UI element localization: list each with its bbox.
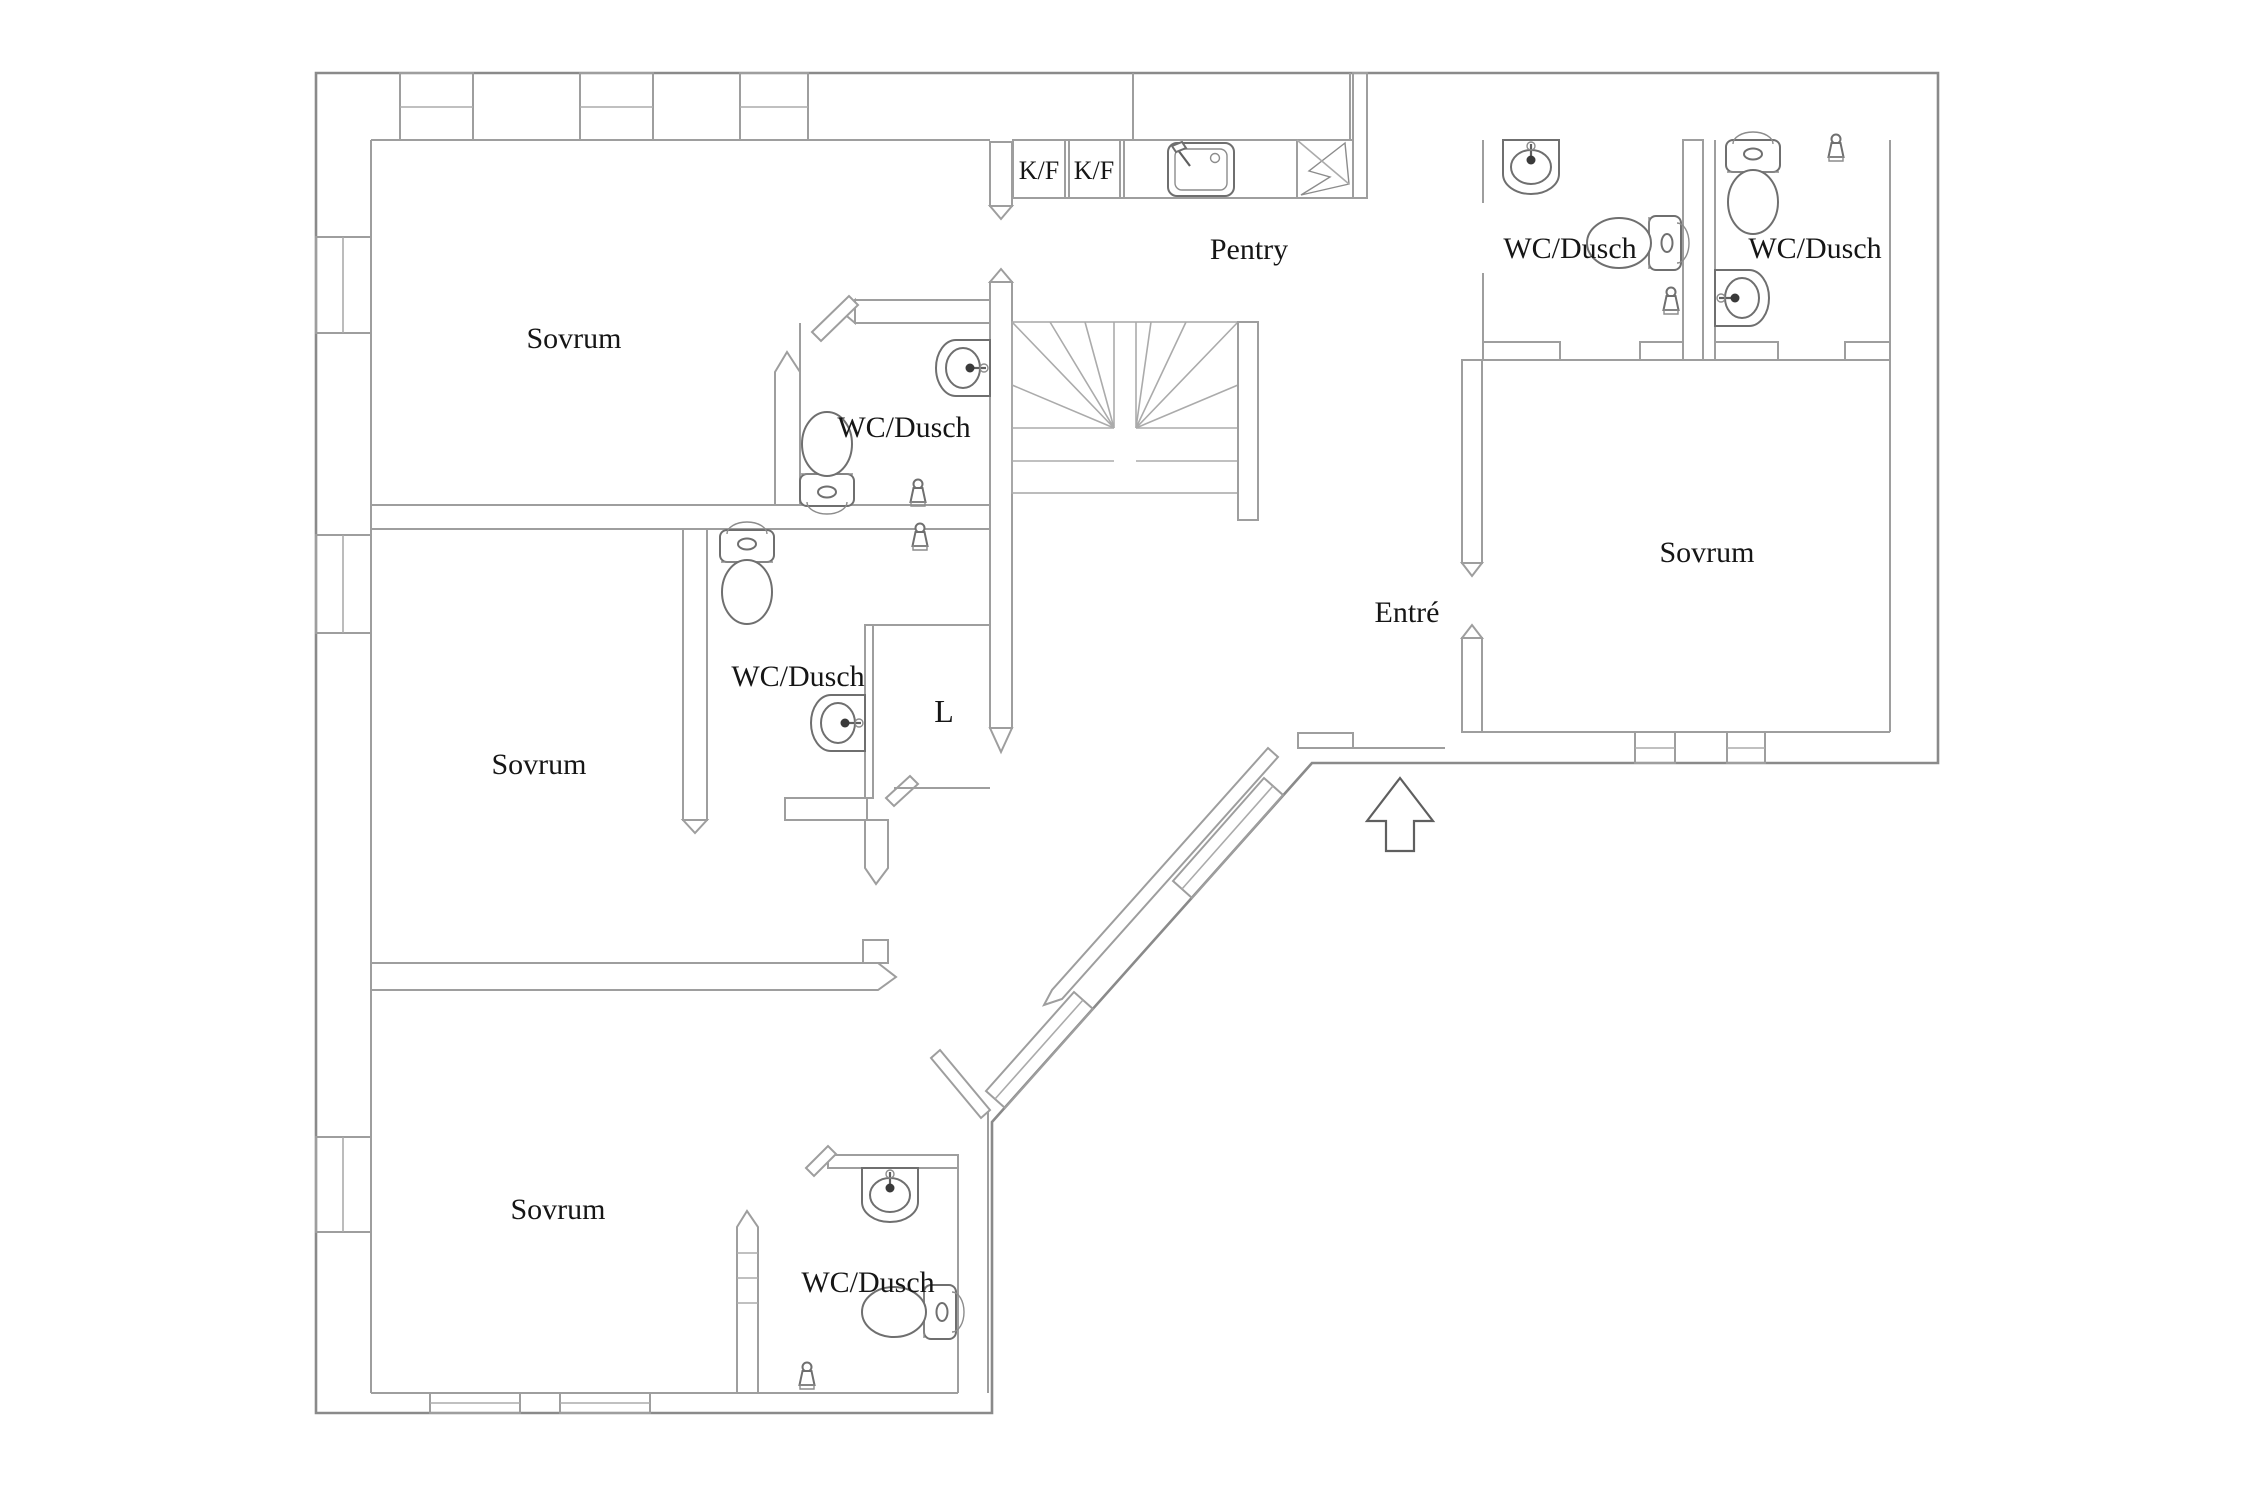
- bottom-wall-windows: [430, 732, 1765, 1413]
- room-label-wc-dusch-bottom: WC/Dusch: [801, 1266, 934, 1299]
- shower-mixer-icon: [1829, 135, 1844, 162]
- room-label-sovrum-middle-left: Sovrum: [491, 748, 586, 781]
- room-label-closet: L: [934, 693, 954, 729]
- left-wall-windows: [316, 237, 371, 1232]
- label-fridge-freezer-1: K/F: [1019, 156, 1059, 185]
- room-label-wc-dusch-middle: WC/Dusch: [731, 660, 864, 693]
- kitchen-sink-icon: [1168, 142, 1234, 196]
- room-label-wc-dusch-stairs: WC/Dusch: [837, 411, 970, 444]
- entry-arrow-icon: [1367, 778, 1433, 851]
- toilet-icon: [1726, 132, 1780, 234]
- kitchen-counter: [1013, 73, 1367, 198]
- floor-plan-canvas: Sovrum Sovrum Sovrum Sovrum WC/Dusch WC/…: [0, 0, 2250, 1500]
- room-label-wc-dusch-right-1: WC/Dusch: [1503, 232, 1636, 265]
- shower-mixer-icon: [800, 1363, 815, 1390]
- shower-mixer-icon: [1664, 288, 1679, 315]
- staircase: [1012, 322, 1258, 520]
- hand-basin-icon: [811, 695, 865, 751]
- hand-basin-icon: [1715, 270, 1769, 326]
- walls-middle: [371, 529, 990, 990]
- shower-mixer-icon: [911, 480, 926, 507]
- room-label-sovrum-bottom: Sovrum: [510, 1193, 605, 1226]
- floor-plan-page: Sovrum Sovrum Sovrum Sovrum WC/Dusch WC/…: [0, 0, 2250, 1500]
- room-label-wc-dusch-right-2: WC/Dusch: [1748, 232, 1881, 265]
- room-label-sovrum-top-left: Sovrum: [526, 322, 621, 355]
- hand-basin-icon: [936, 340, 990, 396]
- label-fridge-freezer-2: K/F: [1074, 156, 1114, 185]
- entrance-walls: [931, 733, 1445, 1118]
- stove-lightning-icon: [1297, 140, 1353, 198]
- room-label-pentry: Pentry: [1210, 233, 1288, 266]
- room-label-entre: Entré: [1375, 596, 1440, 629]
- top-wall-windows: [400, 73, 1350, 140]
- room-label-sovrum-right: Sovrum: [1659, 536, 1754, 569]
- walls-right-bedroom: [1462, 360, 1482, 732]
- hand-basin-icon: [862, 1168, 918, 1222]
- shower-mixer-icon: [913, 524, 928, 551]
- hand-basin-icon: [1503, 140, 1559, 194]
- toilet-icon: [720, 522, 774, 624]
